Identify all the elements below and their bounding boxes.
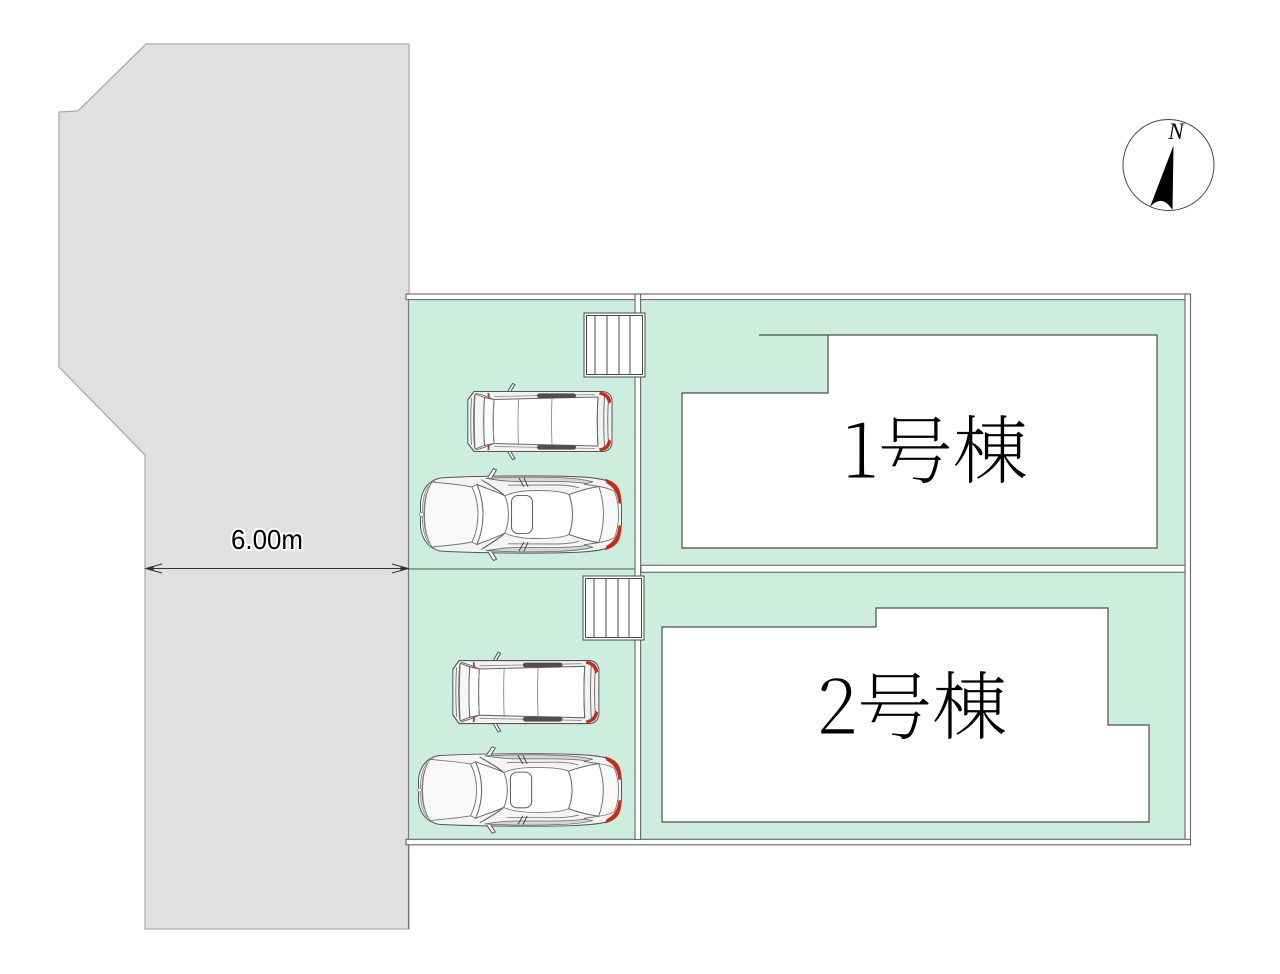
svg-text:N: N — [1167, 119, 1185, 144]
svg-text:6.00m: 6.00m — [231, 524, 303, 555]
